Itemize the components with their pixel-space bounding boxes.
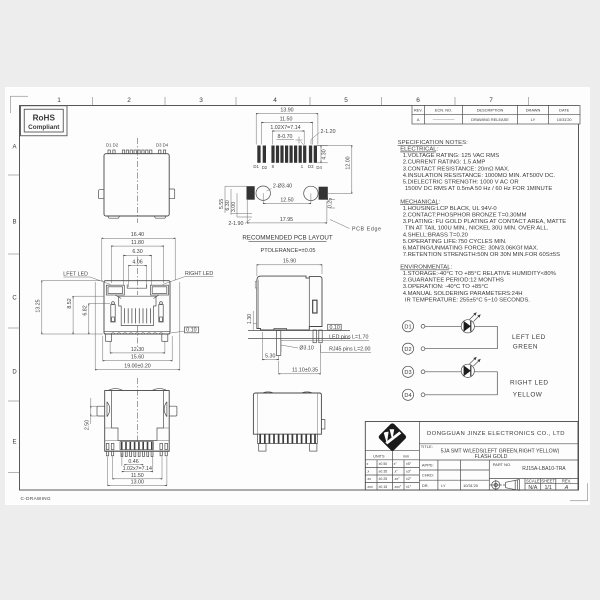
svg-text:REV.: REV. — [414, 108, 423, 113]
svg-text:±0.15: ±0.15 — [379, 485, 388, 489]
svg-text:DONGGUAN JINZE ELECTRONICS: DONGGUAN JINZE ELECTRONICS CO., LTD — [427, 431, 565, 437]
svg-text:LED pins L=1.70: LED pins L=1.70 — [329, 335, 368, 341]
svg-text:3.CONTACT RESISTANCE: 20mΩ MAX: 3.CONTACT RESISTANCE: 20mΩ MAX. — [403, 166, 510, 172]
svg-text:3.00: 3.00 — [231, 202, 237, 212]
svg-text:±0.25: ±0.25 — [379, 477, 388, 481]
svg-text:.x°: .x° — [394, 470, 399, 474]
svg-text:5.OPERATING LIFE:750 CYCLES MI: 5.OPERATING LIFE:750 CYCLES MIN. — [403, 239, 507, 245]
svg-text:PART NO.: PART NO. — [493, 462, 511, 467]
svg-text:12.50: 12.50 — [280, 198, 293, 204]
svg-text:IR TEMPERATURE: 255±5°C 5~10 S: IR TEMPERATURE: 255±5°C 5~10 SECONDS. — [405, 297, 530, 303]
svg-text:.xxx°: .xxx° — [394, 485, 402, 489]
svg-text:4.MANUAL SOLDERING PARAMETERS:: 4.MANUAL SOLDERING PARAMETERS:24H — [403, 291, 523, 297]
svg-text:0.10: 0.10 — [186, 328, 196, 334]
svg-text:15.90: 15.90 — [283, 259, 296, 265]
svg-text:13.25: 13.25 — [36, 299, 42, 312]
svg-text:D3 D4: D3 D4 — [156, 143, 169, 148]
svg-text:1.HOUSING:LCP BLACK, UL 94V-0: 1.HOUSING:LCP BLACK, UL 94V-0 — [403, 206, 498, 212]
svg-text:2.CURRENT RATING: 1.5 AMP: 2.CURRENT RATING: 1.5 AMP — [403, 160, 486, 166]
svg-text:LY: LY — [441, 483, 446, 488]
svg-text:.x: .x — [367, 470, 370, 474]
svg-text:7: 7 — [489, 97, 493, 104]
svg-text:TIN AT TAIL 100U MIN., NICKEL: TIN AT TAIL 100U MIN., NICKEL 30U MIN. O… — [405, 226, 549, 232]
svg-text:10/31'20: 10/31'20 — [557, 117, 573, 122]
svg-text:2.50: 2.50 — [85, 420, 91, 430]
svg-text:±3°: ±3° — [406, 470, 412, 474]
svg-text:11.80: 11.80 — [131, 240, 144, 246]
svg-text:mm: mm — [403, 454, 409, 458]
svg-text:11.10±0.35: 11.10±0.35 — [292, 368, 318, 374]
svg-text:0.10: 0.10 — [330, 325, 340, 331]
svg-text:GREEN: GREEN — [513, 343, 538, 350]
svg-text:DATE: DATE — [559, 108, 569, 113]
svg-text:APPD:: APPD: — [422, 462, 434, 467]
svg-text:DR.: DR. — [422, 483, 429, 488]
svg-text:1.02x7=7.14: 1.02x7=7.14 — [123, 466, 152, 472]
svg-text:LEFT LED: LEFT LED — [512, 334, 546, 341]
svg-text:RJ45 pins L=2.00: RJ45 pins L=2.00 — [329, 347, 370, 353]
svg-text:RoHS: RoHS — [33, 114, 56, 123]
svg-text:10/31'20: 10/31'20 — [463, 483, 479, 488]
svg-text:2: 2 — [127, 97, 131, 104]
svg-text:1.VOLTAGE RATING: 125 VAC RMS: 1.VOLTAGE RATING: 125 VAC RMS — [403, 153, 500, 159]
svg-text:A: A — [12, 145, 16, 151]
svg-text:0.25: 0.25 — [328, 198, 334, 208]
svg-text:CHKD:: CHKD: — [422, 472, 434, 477]
svg-text:Compliant: Compliant — [28, 124, 60, 131]
svg-text:±1°: ±1° — [406, 485, 412, 489]
svg-text:D3: D3 — [308, 164, 314, 169]
svg-text:RJ15A-LBA10-TRA: RJ15A-LBA10-TRA — [522, 466, 566, 472]
svg-text:x: x — [367, 462, 369, 466]
svg-text:8-0.70: 8-0.70 — [277, 134, 292, 140]
svg-text:D1: D1 — [404, 325, 411, 331]
svg-text:A: A — [417, 117, 420, 122]
svg-text:19.00±0.20: 19.00±0.20 — [124, 364, 151, 370]
svg-text:5: 5 — [344, 97, 348, 104]
svg-text:.xxx: .xxx — [367, 485, 373, 489]
svg-text:D: D — [12, 370, 17, 376]
svg-text:SCALE: SCALE — [526, 479, 540, 484]
svg-text:±0.35: ±0.35 — [379, 470, 388, 474]
svg-text:2-1.20: 2-1.20 — [321, 129, 336, 135]
svg-text:A: A — [564, 485, 569, 491]
svg-text:LY: LY — [531, 117, 536, 122]
svg-text:ECN. NO.: ECN. NO. — [435, 108, 452, 113]
svg-text:D4: D4 — [316, 165, 322, 170]
svg-text:7.RETENTION STRENGTH:50N OR 3: 7.RETENTION STRENGTH:50N OR 30N MIN.FOR … — [403, 252, 560, 258]
svg-text:6.30: 6.30 — [132, 249, 142, 255]
svg-text:C: C — [12, 296, 17, 302]
svg-text:4.INSULATION RESISTANCE: 1000M: 4.INSULATION RESISTANCE: 1000MΩ MIN. AT5… — [403, 173, 556, 179]
svg-text:Ø3.10: Ø3.10 — [299, 346, 313, 352]
svg-text:RECOMMENDED PCB LAYOUT: RECOMMENDED PCB LAYOUT — [242, 235, 333, 242]
svg-text:YELLOW: YELLOW — [513, 392, 543, 399]
svg-text:D1 D2: D1 D2 — [106, 143, 119, 148]
svg-text:±5°: ±5° — [406, 462, 412, 466]
svg-text:1/1: 1/1 — [544, 485, 552, 491]
svg-text:13.90: 13.90 — [280, 108, 293, 114]
svg-text:3.OPERATION: -40°C TO +85°C: 3.OPERATION: -40°C TO +85°C — [403, 284, 489, 290]
svg-text:SHEET: SHEET — [541, 479, 555, 484]
svg-text:PTOLERANCE=±0.05: PTOLERANCE=±0.05 — [260, 248, 315, 254]
svg-text:12.30: 12.30 — [131, 347, 144, 353]
svg-text:E: E — [12, 440, 16, 446]
svg-text:2.GUARANTEE PERIOD:12 MONTHS: 2.GUARANTEE PERIOD:12 MONTHS — [403, 278, 504, 284]
svg-text:1.02X7=7.14: 1.02X7=7.14 — [270, 125, 300, 131]
svg-text:4.SHELL:BRASS T=0.20: 4.SHELL:BRASS T=0.20 — [403, 232, 469, 238]
svg-text:6: 6 — [416, 97, 420, 104]
svg-text:2.CONTACT:PHOSPHOR BRONZE T=0.: 2.CONTACT:PHOSPHOR BRONZE T=0.30MM — [403, 213, 527, 219]
svg-text:6.30: 6.30 — [225, 200, 231, 210]
svg-text:12.00: 12.00 — [345, 156, 351, 169]
svg-text:3: 3 — [199, 97, 203, 104]
svg-text:FLASH GOLD: FLASH GOLD — [475, 454, 508, 460]
svg-text:PCB Edge: PCB Edge — [352, 227, 382, 233]
svg-text:5.30: 5.30 — [265, 354, 275, 360]
svg-text:3.PLATING: FU GOLD PLATING AT: 3.PLATING: FU GOLD PLATING AT CONTACT AR… — [403, 219, 567, 225]
svg-text:4: 4 — [273, 97, 277, 104]
svg-text:2-1.90: 2-1.90 — [228, 221, 243, 227]
svg-text:C-DRAWING: C-DRAWING — [21, 496, 52, 501]
svg-text:11.50: 11.50 — [280, 116, 293, 122]
svg-text:TITLE:: TITLE: — [421, 444, 433, 449]
svg-text:11.50: 11.50 — [131, 473, 144, 479]
svg-text:4.30: 4.30 — [322, 149, 328, 159]
svg-text:UNITS: UNITS — [373, 454, 385, 458]
svg-text:D2: D2 — [404, 347, 411, 353]
svg-text:±2°: ±2° — [406, 477, 412, 481]
svg-text:2-Ø3.40: 2-Ø3.40 — [273, 184, 292, 190]
svg-text:±0.50: ±0.50 — [379, 462, 388, 466]
svg-text:1: 1 — [57, 97, 61, 104]
svg-text:B: B — [12, 220, 16, 226]
svg-text:~~~~~~~~~~~: ~~~~~~~~~~~ — [433, 117, 456, 122]
svg-text:0.46: 0.46 — [128, 459, 138, 465]
svg-text:16.40: 16.40 — [131, 232, 144, 238]
svg-text:DRAWING RELEASE: DRAWING RELEASE — [471, 117, 509, 122]
svg-text:D2: D2 — [262, 165, 268, 170]
svg-text:5.DIELECTRIC STRENGTH: 1000 V: 5.DIELECTRIC STRENGTH: 1000 V AC OR — [403, 180, 519, 186]
svg-text:8.52: 8.52 — [67, 298, 73, 308]
svg-text:6.MATING/UNMATING FORCE: 30N/: 6.MATING/UNMATING FORCE: 30N/3.06KGf MAX… — [403, 246, 539, 252]
svg-text:D4: D4 — [404, 393, 411, 399]
svg-text:1.STORAGE:-40°C TO +85°C RELA: 1.STORAGE:-40°C TO +85°C RELATIVE HUMIDI… — [403, 271, 557, 277]
svg-text:6.82: 6.82 — [83, 305, 89, 315]
svg-text:17.95: 17.95 — [280, 217, 293, 223]
svg-text:1.30: 1.30 — [247, 314, 253, 324]
svg-text:.xx: .xx — [367, 477, 372, 481]
svg-text:DESCRIPTION: DESCRIPTION — [477, 108, 504, 113]
svg-text:RIGHT LED: RIGHT LED — [510, 380, 548, 387]
svg-text:13.00: 13.00 — [131, 479, 144, 485]
svg-text:REV.: REV. — [562, 479, 571, 484]
svg-text:15.60: 15.60 — [131, 355, 144, 361]
svg-text:D3: D3 — [404, 370, 411, 376]
svg-text:1500V DC RMS AT 0.5mA 50 Hz /: 1500V DC RMS AT 0.5mA 50 Hz / 60 Hz FOR … — [405, 186, 552, 192]
svg-text:N/A: N/A — [528, 485, 537, 491]
svg-text:D1: D1 — [253, 164, 259, 169]
svg-text:.xx°: .xx° — [394, 477, 400, 481]
svg-text:5.55: 5.55 — [219, 199, 225, 209]
svg-text:DRAWN: DRAWN — [526, 108, 541, 113]
